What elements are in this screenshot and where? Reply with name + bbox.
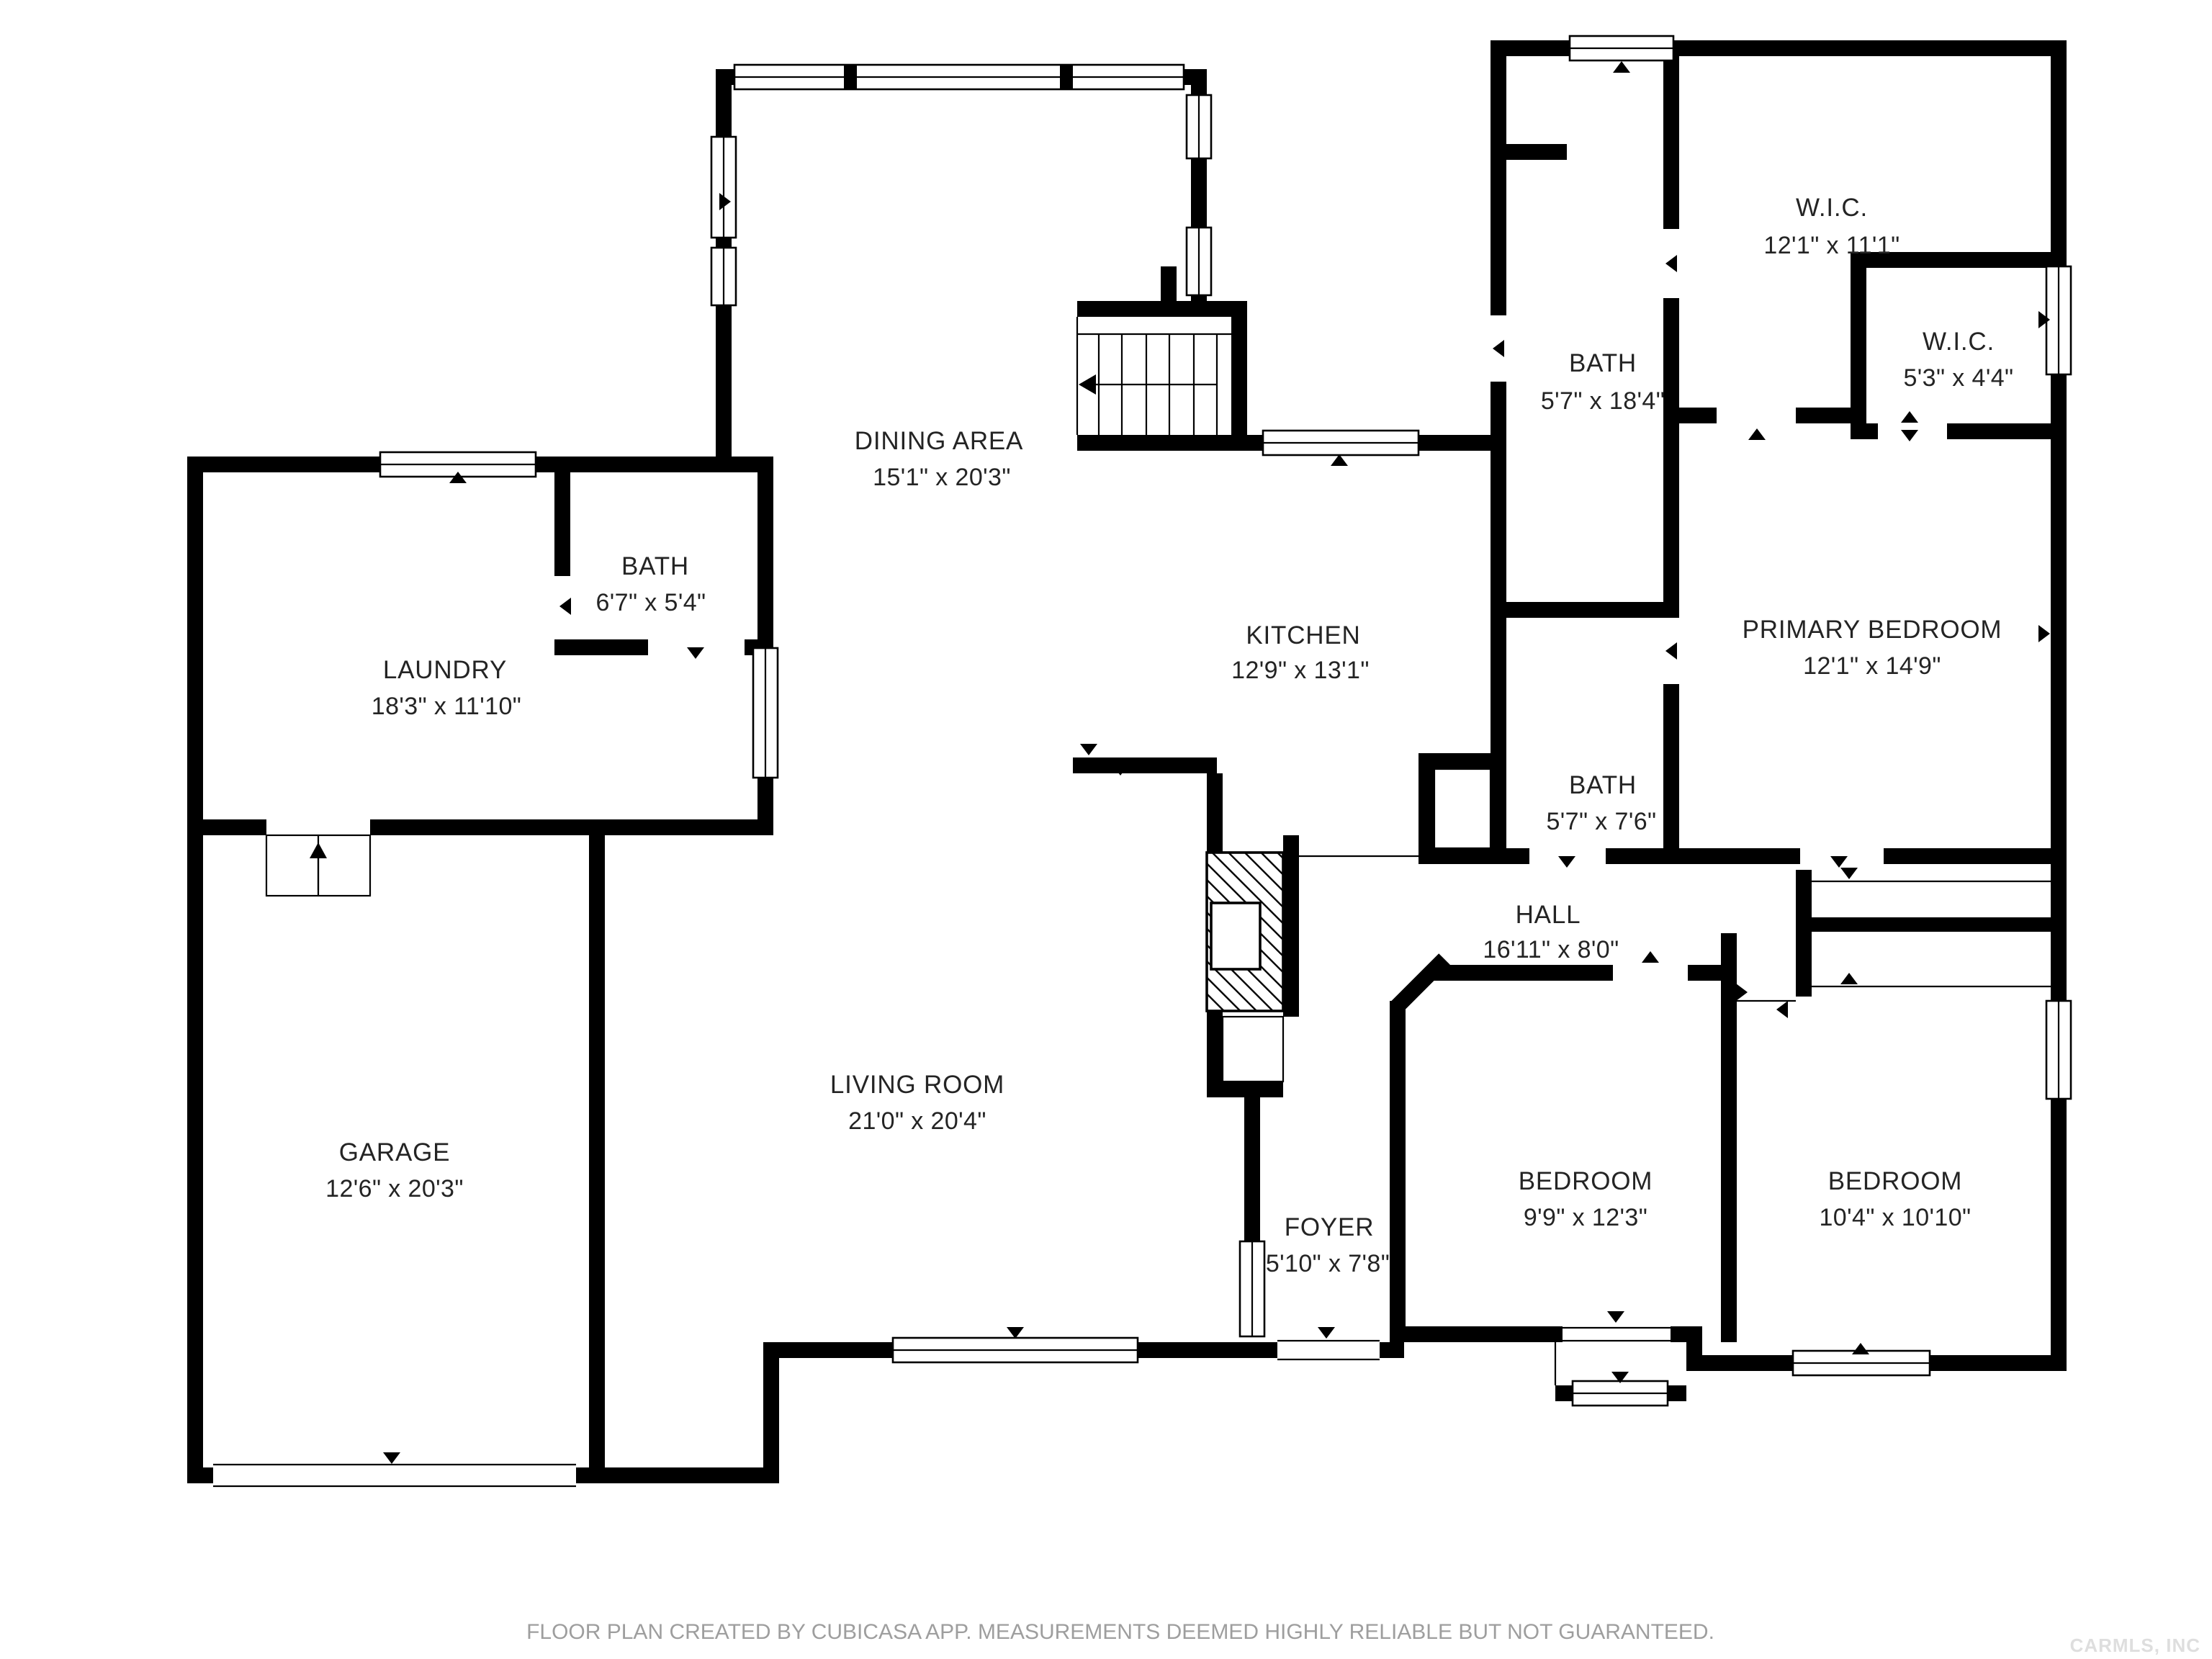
room-dims: 15'1" x 20'3" xyxy=(873,464,1011,491)
room-name: HALL xyxy=(1516,901,1581,929)
room-dims: 12'1" x 11'1" xyxy=(1763,232,1899,259)
room-label-dining-area: DINING AREA 15'1" x 20'3" xyxy=(855,427,1023,491)
room-name: W.I.C. xyxy=(1923,328,1995,356)
room-dims: 16'11" x 8'0" xyxy=(1483,936,1619,963)
room-dims: 12'1" x 14'9" xyxy=(1803,652,1941,680)
room-dims: 18'3" x 11'10" xyxy=(372,693,521,720)
room-label-wic-1: W.I.C. 12'1" x 11'1" xyxy=(1763,194,1899,259)
room-name: W.I.C. xyxy=(1796,194,1868,222)
room-label-foyer: FOYER 5'10" x 7'8" xyxy=(1266,1213,1390,1277)
room-name: BEDROOM xyxy=(1519,1167,1653,1195)
room-name: BATH xyxy=(1569,349,1637,377)
room-name: PRIMARY BEDROOM xyxy=(1743,616,2002,644)
room-dims: 9'9" x 12'3" xyxy=(1524,1204,1647,1231)
room-dims: 5'7" x 18'4" xyxy=(1541,387,1665,415)
room-label-bath-laundry: BATH 6'7" x 5'4" xyxy=(595,552,706,616)
room-label-bath-hall: BATH 5'7" x 7'6" xyxy=(1546,771,1656,835)
room-name: BATH xyxy=(621,552,689,580)
room-name: BATH xyxy=(1569,771,1637,799)
room-name: GARAGE xyxy=(339,1138,451,1166)
room-dims: 5'10" x 7'8" xyxy=(1266,1250,1390,1277)
room-dims: 5'7" x 7'6" xyxy=(1546,808,1656,835)
room-name: DINING AREA xyxy=(855,427,1023,455)
room-label-garage: GARAGE 12'6" x 20'3" xyxy=(325,1138,464,1202)
room-dims: 12'9" x 13'1" xyxy=(1231,657,1370,684)
room-label-kitchen: KITCHEN 12'9" x 13'1" xyxy=(1231,621,1370,684)
room-dims: 6'7" x 5'4" xyxy=(595,589,706,616)
room-dims: 5'3" x 4'4" xyxy=(1903,364,2013,392)
shower-niche xyxy=(1434,769,1491,848)
room-name: KITCHEN xyxy=(1246,621,1360,649)
floor-plan-drawing: W.I.C. 12'1" x 11'1" W.I.C. 5'3" x 4'4" … xyxy=(0,0,2212,1659)
room-label-bedroom-1: BEDROOM 9'9" x 12'3" xyxy=(1519,1167,1653,1231)
watermark: CARMLS, INC xyxy=(2070,1635,2200,1656)
thin-partitions xyxy=(1299,856,2051,1385)
footer-disclaimer: FLOOR PLAN CREATED BY CUBICASA APP. MEAS… xyxy=(526,1620,1714,1644)
room-label-primary-bedroom: PRIMARY BEDROOM 12'1" x 14'9" xyxy=(1743,616,2002,680)
room-label-living-room: LIVING ROOM 21'0" x 20'4" xyxy=(830,1071,1004,1135)
room-label-bedroom-2: BEDROOM 10'4" x 10'10" xyxy=(1820,1167,1972,1231)
room-label-hall: HALL 16'11" x 8'0" xyxy=(1483,901,1619,963)
floor-plan-page: W.I.C. 12'1" x 11'1" W.I.C. 5'3" x 4'4" … xyxy=(0,0,2212,1659)
room-label-laundry: LAUNDRY 18'3" x 11'10" xyxy=(372,656,521,720)
foyer-closet-niche xyxy=(1223,1017,1283,1082)
stair-direction-arrow xyxy=(1079,374,1096,395)
room-dims: 12'6" x 20'3" xyxy=(325,1175,464,1202)
room-dims: 10'4" x 10'10" xyxy=(1820,1204,1972,1231)
staircase xyxy=(1077,317,1231,435)
room-name: LAUNDRY xyxy=(383,656,507,684)
room-name: LIVING ROOM xyxy=(830,1071,1004,1099)
room-name: FOYER xyxy=(1285,1213,1375,1241)
room-label-bath-upper: BATH 5'7" x 18'4" xyxy=(1541,349,1665,415)
room-name: BEDROOM xyxy=(1828,1167,1962,1195)
room-label-wic-2: W.I.C. 5'3" x 4'4" xyxy=(1903,328,2013,392)
room-dims: 21'0" x 20'4" xyxy=(848,1107,986,1135)
